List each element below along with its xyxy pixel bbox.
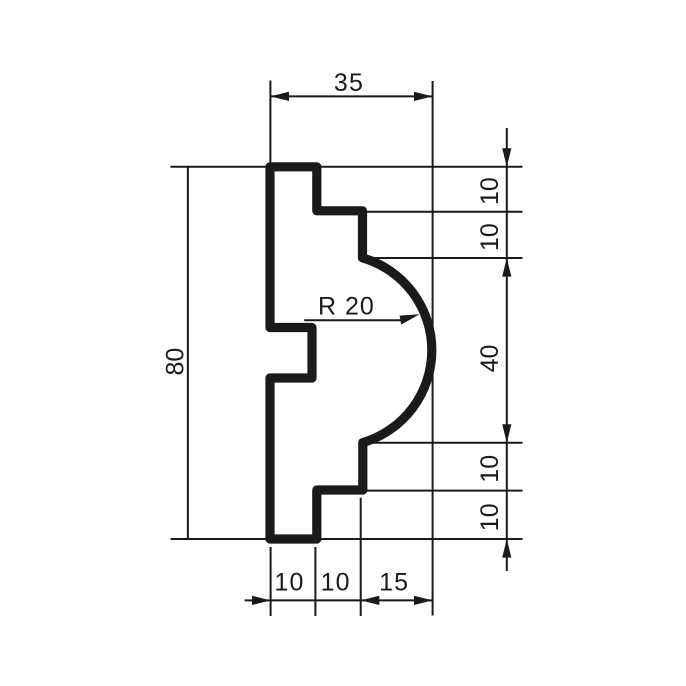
svg-text:10: 10 xyxy=(476,177,504,205)
svg-text:35: 35 xyxy=(334,69,364,97)
svg-text:10: 10 xyxy=(476,503,504,531)
svg-text:40: 40 xyxy=(476,345,504,373)
svg-text:80: 80 xyxy=(162,348,190,376)
svg-text:10: 10 xyxy=(274,569,304,597)
svg-text:10: 10 xyxy=(321,569,351,597)
svg-text:10: 10 xyxy=(476,223,504,251)
svg-text:R 20: R 20 xyxy=(318,293,375,321)
svg-text:15: 15 xyxy=(379,569,409,597)
svg-text:10: 10 xyxy=(476,455,504,483)
